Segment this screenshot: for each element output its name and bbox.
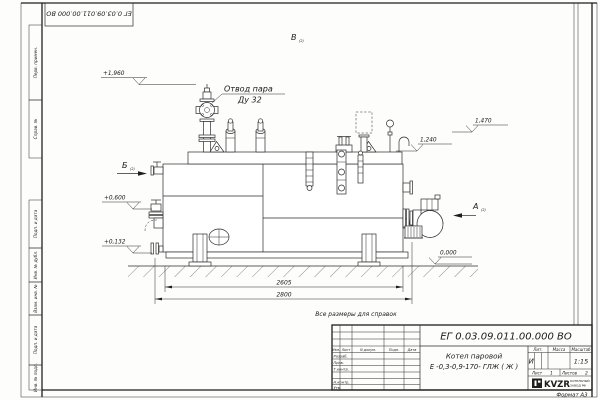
vent-and-instrument	[387, 120, 410, 152]
stamp-designation: ЕГ 0.03.09.011.00.000 ВО	[46, 10, 132, 18]
format-note: Формат А3	[556, 393, 588, 399]
svg-text:А: А	[472, 202, 478, 211]
title-name-line1: Котел паровой	[446, 352, 503, 361]
svg-text:+1,960: +1,960	[103, 71, 125, 77]
title-designation: ЕГ 0.03.09.011.00.000 ВО	[440, 332, 572, 343]
sheets-value: 2	[585, 370, 588, 376]
steam-valve-assembly	[196, 84, 218, 152]
drawing-sheet: ЕГ 0.03.09.011.00.000 ВО Перв. примен. С…	[0, 0, 600, 400]
top-left-stamp: ЕГ 0.03.09.011.00.000 ВО	[45, 3, 133, 26]
steam-label-line1: Отвод пара	[224, 85, 273, 94]
margin-label-3: Подп. и дата	[33, 209, 38, 238]
elevation-1240: 1,240	[396, 138, 452, 152]
staff-header-ndoc: N докум.	[360, 348, 376, 352]
steam-label-line2: Ду 32	[237, 96, 262, 105]
left-margin-column: Перв. примен. Справ. № Подп. и дата Инв.…	[29, 25, 42, 392]
boiler-drawing-canvas: ЕГ 0.03.09.011.00.000 ВО Перв. примен. С…	[0, 0, 600, 400]
svg-text:0,000: 0,000	[440, 251, 457, 257]
title-block: ЕГ 0.03.09.011.00.000 ВО Котел паровой Е…	[332, 325, 592, 390]
view-marker-b: Б (2)	[117, 161, 147, 176]
lit-value: И	[529, 358, 535, 366]
margin-label-5: Взам. инв. №	[33, 284, 38, 313]
elevation-0: 0,000	[429, 251, 472, 265]
elevation-132: +0,132	[102, 240, 152, 254]
margin-label-2: Справ. №	[33, 118, 38, 139]
margin-label-1: Перв. примен.	[33, 47, 38, 78]
logo-sub1: КОТЕЛЬНЫЙ	[570, 378, 590, 383]
staff-row-utv: Утв.	[334, 386, 342, 390]
elevation-600: +0,600	[102, 196, 152, 210]
margin-label-6: Подп. и дата	[33, 325, 38, 354]
header-lit: Лит.	[532, 347, 542, 352]
staff-header-izm: Изм.	[332, 348, 340, 352]
staff-header-data: Дата	[407, 348, 417, 352]
header-scale: Масштаб	[571, 347, 591, 352]
staff-row-tkontr: Т.контр.	[334, 368, 350, 372]
dim-outer: 2800	[276, 292, 291, 299]
svg-text:1,470: 1,470	[475, 119, 492, 125]
view-marker-a: А (2)	[453, 202, 486, 218]
staff-header-podp: Подп.	[389, 348, 399, 352]
left-fittings	[145, 162, 163, 254]
svg-text:+0,600: +0,600	[104, 196, 126, 202]
burner-assembly	[403, 195, 443, 238]
logo-mark-icon	[532, 379, 542, 389]
svg-text:Б: Б	[122, 161, 128, 170]
svg-text:В: В	[291, 33, 297, 42]
ground-hatching	[128, 266, 478, 277]
boiler-body	[163, 152, 408, 266]
svg-text:(2): (2)	[130, 167, 135, 171]
margin-label-4: Инв. № дубл.	[33, 251, 38, 280]
logo-text: KVZR	[544, 380, 570, 390]
elevation-1470: 1,470	[452, 119, 508, 133]
company-logo: KVZR КОТЕЛЬНЫЙ ЗАВОД РФ	[532, 378, 590, 390]
staff-row-nkontr: Н.контр.	[334, 380, 350, 384]
safety-valves	[226, 119, 265, 152]
scale-value: 1:15	[574, 358, 589, 366]
sheet-value: 1	[550, 370, 553, 376]
svg-text:(2): (2)	[481, 208, 486, 212]
sheets-label: Листов	[561, 370, 578, 375]
reference-note: Все размеры для справок	[315, 311, 397, 318]
margin-label-7: Инв. № подл.	[33, 363, 38, 392]
sheet-label: Лист	[531, 370, 543, 375]
logo-sub2: ЗАВОД РФ	[570, 384, 587, 388]
header-mass: Масса	[553, 347, 566, 352]
dim-inner: 2605	[276, 280, 291, 287]
svg-text:+0,132: +0,132	[104, 240, 126, 246]
title-name-line2: Е -0,3-0,9-170- ГЛЖ ( Ж )	[430, 363, 518, 371]
staff-header-list: Лист	[341, 348, 352, 352]
svg-text:1,240: 1,240	[420, 138, 437, 144]
staff-row-prov: Пров.	[334, 361, 344, 365]
steam-outlet-label: Отвод пара Ду 32	[212, 85, 285, 105]
svg-text:(2): (2)	[299, 39, 304, 43]
staff-row-razrab: Разраб.	[334, 355, 348, 359]
view-marker-v: В (2)	[291, 33, 304, 43]
elevation-1960: +1,960	[101, 71, 196, 85]
